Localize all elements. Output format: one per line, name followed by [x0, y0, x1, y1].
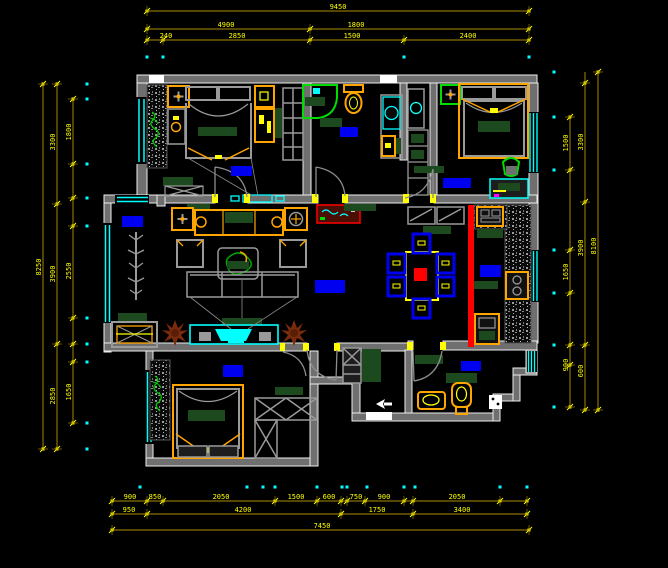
dimension-label: 1750 [369, 506, 386, 514]
dimension-label: 3300 [577, 134, 585, 151]
dimension-label: 2400 [460, 32, 477, 40]
cooktop [506, 272, 528, 299]
dimension-label: 1500 [288, 493, 305, 501]
dimension-label: 2050 [213, 493, 230, 501]
bed-double [173, 385, 243, 458]
vanity-unit [381, 95, 402, 158]
dimension-label: 2850 [49, 388, 57, 405]
wall-mid-c [345, 195, 407, 203]
living-room-furniture [162, 208, 307, 346]
dimension-label: 900 [378, 493, 391, 501]
dimension-label: 1650 [562, 264, 570, 281]
dimension-label: 1650 [65, 384, 73, 401]
window-balcony-left [103, 223, 112, 323]
storage-bench [112, 322, 157, 347]
shelf-goods [275, 387, 303, 395]
dimension-label: 1500 [562, 135, 570, 152]
bedroom3-furniture [173, 385, 317, 458]
bench-cushion [163, 177, 193, 186]
wardrobe-x [255, 398, 317, 458]
window-bathroom2-right [527, 351, 537, 372]
bedroom1-furniture [163, 86, 303, 202]
tv-cabinet [190, 325, 278, 344]
dimension-label: 240 [160, 32, 173, 40]
shower-bench [305, 97, 325, 106]
desk-chair [503, 158, 519, 176]
room-label-living-room [315, 280, 345, 293]
counter-goods [477, 229, 503, 238]
dimension-label: 7450 [314, 522, 331, 530]
dimension-label: 850 [149, 493, 162, 501]
table-centerpiece [414, 268, 427, 281]
television [215, 329, 252, 341]
bathroom1-fixtures [303, 85, 402, 158]
potted-plant [281, 320, 307, 346]
wardrobe-sliding [283, 88, 303, 160]
dimension-label: 2050 [449, 493, 466, 501]
room-label-kitchen [480, 265, 501, 277]
dining-chair [413, 299, 430, 318]
title-block [366, 412, 392, 420]
dining-chair [388, 277, 405, 296]
sofa-three-seat [195, 210, 283, 235]
fan-icon [446, 90, 456, 100]
counter-goods [446, 373, 477, 383]
sliding-door-track [468, 205, 474, 347]
dimension-label: 600 [323, 493, 336, 501]
shelf-item [411, 134, 424, 143]
shower-head [313, 88, 320, 94]
coat-tree [128, 232, 144, 300]
door-mat [344, 204, 376, 211]
rug [187, 272, 298, 297]
speaker [199, 332, 211, 341]
dimension-label: 900 [124, 493, 137, 501]
room-label-balcony [122, 216, 143, 227]
room-label-bedroom-1 [231, 166, 252, 176]
bed-runner [478, 121, 510, 132]
wash-basin [418, 392, 445, 409]
dimension-label: 3900 [577, 240, 585, 257]
window-top-2 [380, 75, 397, 83]
dimension-label: 750 [350, 493, 363, 501]
planter [118, 313, 147, 322]
balcony-items [112, 232, 157, 347]
dining-set [388, 207, 464, 318]
desk [490, 179, 528, 198]
dimension-label: 2550 [65, 263, 73, 280]
washing-machine [408, 89, 424, 128]
dining-chair [388, 254, 405, 273]
wall-art [408, 207, 464, 224]
dimension-label: 1800 [348, 21, 365, 29]
room-label-bathroom-2 [461, 361, 481, 371]
cad-canvas: 9450490018002402850150024009008502050150… [0, 0, 668, 568]
armchair-right [280, 240, 306, 267]
door-mat [414, 166, 444, 173]
dining-chair [413, 234, 430, 253]
cabinet-knob [259, 115, 264, 124]
room-label-bedroom-3 [223, 365, 243, 377]
window-bedroom2-right [528, 112, 539, 173]
soft-panel [275, 108, 282, 138]
sofa-side-table-right [285, 208, 307, 230]
bed-runner [198, 127, 237, 136]
toilet [344, 85, 363, 113]
wall-bath2-left [405, 350, 412, 413]
wall-bedroom3-bottom [146, 458, 318, 466]
dresser [168, 109, 185, 144]
nightstand-right [255, 86, 274, 107]
lamp-icon [178, 214, 188, 224]
dimension-label: 900 [562, 359, 570, 372]
dimension-label: 3400 [454, 506, 471, 514]
dimension-label: 1800 [65, 124, 73, 141]
counter-goods [474, 281, 498, 289]
window-balcony-top [115, 195, 149, 204]
dimension-label: 8100 [590, 238, 598, 255]
feature-wall-bedroom1 [147, 85, 167, 168]
stool [172, 123, 181, 132]
potted-plant [162, 320, 188, 346]
dresser-lamp [173, 116, 179, 120]
dimension-label: 4900 [218, 21, 235, 29]
cabinet-knob [267, 121, 271, 133]
lamp-icon [260, 92, 268, 100]
door-bathroom1 [316, 167, 345, 197]
sink-unit [477, 207, 503, 226]
bed-double [186, 87, 251, 158]
room-label-bathroom-1 [340, 127, 358, 137]
dimension-label: 600 [577, 365, 585, 378]
bed-runner [188, 410, 225, 421]
dimension-label: 3300 [49, 134, 57, 151]
shoe-cabinet [343, 348, 361, 383]
window-bedroom1-left [136, 97, 148, 164]
dimension-label: 4200 [235, 506, 252, 514]
dimension-label: 9450 [330, 3, 347, 11]
entry-mat [362, 349, 381, 382]
dimension-label: 2850 [229, 32, 246, 40]
dining-chair [437, 254, 454, 273]
switch-box [489, 395, 502, 409]
bathroom2-fixtures [415, 355, 502, 414]
dimension-label: 8250 [35, 259, 43, 276]
wall-top [137, 75, 537, 83]
shelf-item [411, 150, 424, 159]
room-label-bedroom-2 [443, 178, 471, 188]
armchair-left [177, 240, 203, 267]
north-arrow-icon [376, 399, 392, 409]
side-cabinet [255, 109, 274, 142]
dining-chair [437, 277, 454, 296]
lamp-icon [174, 92, 184, 102]
bath-shelf [320, 118, 342, 127]
dimension-label: 3900 [49, 266, 57, 283]
door-bedroom2 [405, 169, 433, 198]
laundry-closet [408, 89, 428, 195]
door-bedroom3 [283, 352, 306, 376]
floor-plan-drawing: 9450490018002402850150024009008502050150… [0, 0, 668, 568]
speaker [259, 332, 271, 341]
wall-stub [157, 195, 165, 206]
refrigerator [475, 314, 499, 344]
dimension-label: 950 [123, 506, 136, 514]
dimension-label: 1500 [344, 32, 361, 40]
tv-sight-lines [188, 158, 258, 196]
toilet [452, 383, 471, 414]
window-top-1 [149, 75, 164, 83]
